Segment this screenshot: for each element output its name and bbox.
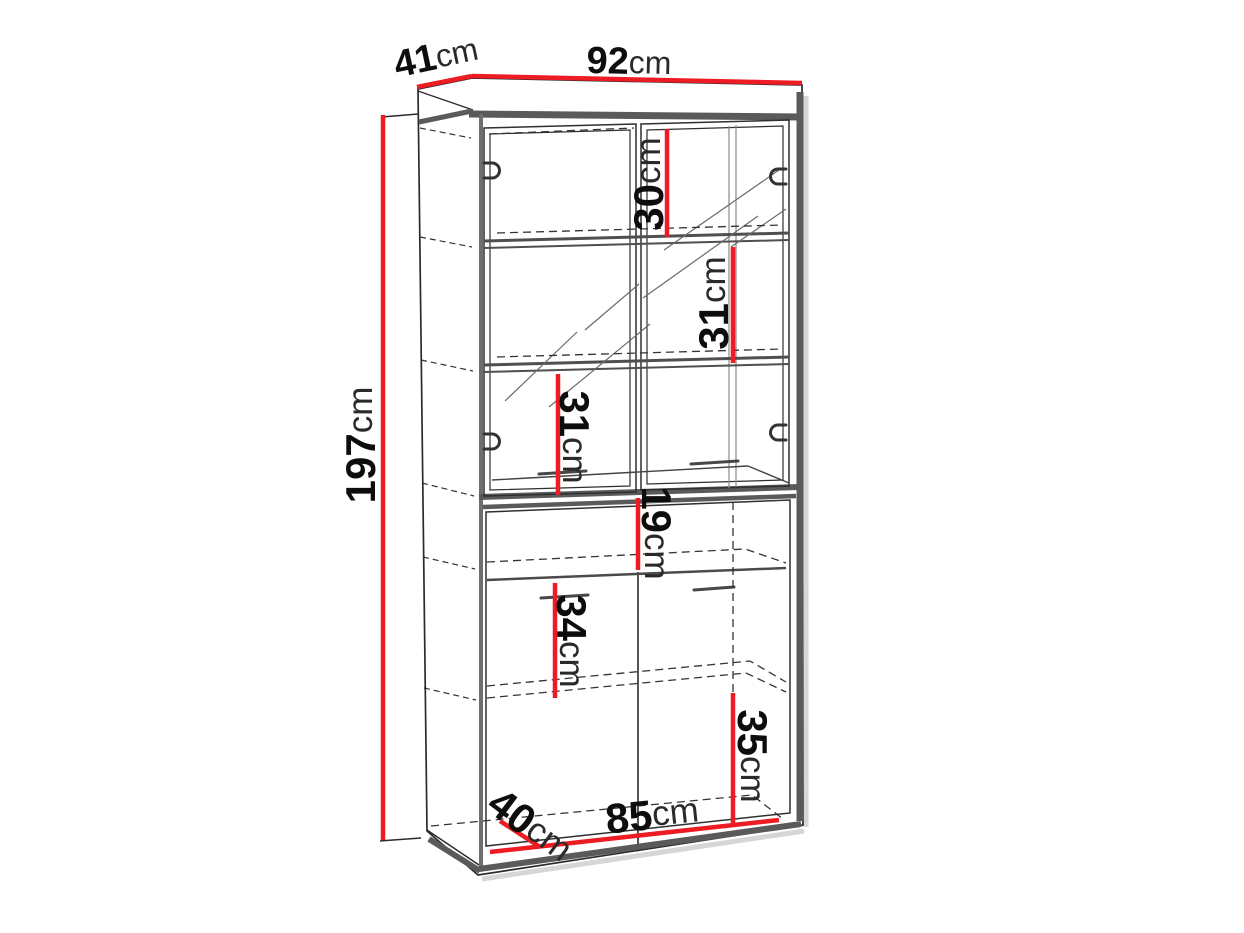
dim-width-unit: cm <box>628 44 672 81</box>
dim-unit: cm <box>556 437 595 484</box>
dim-height-unit: cm <box>341 387 380 434</box>
dim-niche-label: 19cm <box>634 486 681 579</box>
dim-value: 34 <box>549 594 596 641</box>
dim-unit: cm <box>638 533 677 580</box>
dim-unit: cm <box>553 641 592 688</box>
height-tick-top <box>382 114 418 117</box>
height-tick-bottom <box>380 838 421 841</box>
dim-depth-unit: cm <box>432 31 481 75</box>
dim-value: 85 <box>603 791 654 843</box>
dim-unit: cm <box>734 756 773 803</box>
dim-height-label: 197cm <box>337 387 384 504</box>
diagram-page: 41cm 92cm 197cm 30cm 31cm 31cm 19cm 34cm… <box>0 0 1244 933</box>
dim-height-value: 197 <box>337 433 384 503</box>
dim-value: 35 <box>730 709 777 756</box>
dim-value: 30 <box>625 184 672 231</box>
dim-unit: cm <box>629 137 668 184</box>
extension-ticks <box>380 114 421 841</box>
dim-upper-right-label: 31cm <box>690 256 737 349</box>
dim-upper-left-label: 31cm <box>552 390 599 483</box>
dim-unit: cm <box>650 790 700 834</box>
dim-unit: cm <box>694 256 733 303</box>
dim-value: 19 <box>634 486 681 533</box>
dim-width-value: 92 <box>586 40 629 83</box>
dim-value: 31 <box>690 303 737 350</box>
dim-width-label: 92cm <box>586 40 672 84</box>
dim-lower-left-label: 34cm <box>549 594 596 687</box>
dim-value: 31 <box>552 390 599 437</box>
dim-lower-right-label: 35cm <box>730 709 777 802</box>
dim-top-compartment-label: 30cm <box>625 137 672 230</box>
cabinet-dimension-diagram: 41cm 92cm 197cm 30cm 31cm 31cm 19cm 34cm… <box>0 0 1244 933</box>
frame-top-edge <box>469 114 801 117</box>
